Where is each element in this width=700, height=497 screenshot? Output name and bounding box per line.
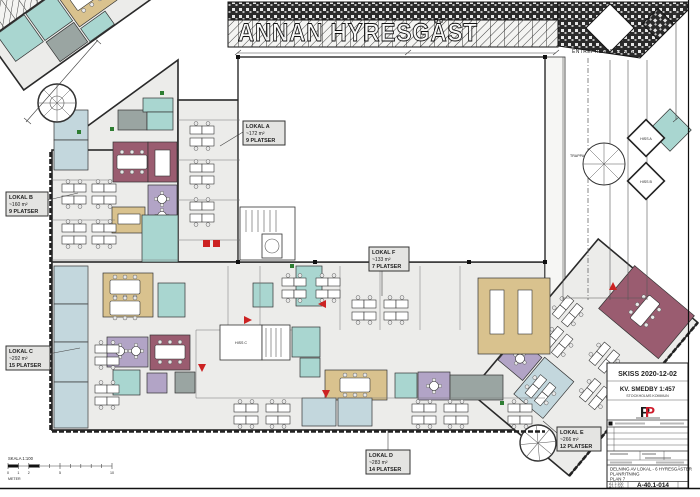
property-designation: KV. SMEDBY 1:457 xyxy=(620,386,676,393)
svg-text:15 PLATSER: 15 PLATSER xyxy=(9,363,41,369)
svg-text:HISS B: HISS B xyxy=(640,180,652,184)
sketch-date: SKISS 2020-12-02 xyxy=(618,371,677,378)
svg-text:LOKAL E: LOKAL E xyxy=(560,430,584,436)
svg-text:LOKAL D: LOKAL D xyxy=(369,453,393,459)
svg-text:HISS A: HISS A xyxy=(640,137,652,141)
hiss-b-icon: HISS B xyxy=(628,163,665,200)
svg-text:~292 m²: ~292 m² xyxy=(9,356,28,362)
svg-text:~266 m²: ~266 m² xyxy=(560,437,579,443)
courtyard-stair-core xyxy=(240,207,295,260)
svg-text:~133 m²: ~133 m² xyxy=(372,257,391,263)
svg-text:9 PLATSER: 9 PLATSER xyxy=(246,138,275,144)
svg-text:10: 10 xyxy=(110,471,114,475)
drawing-description-3: PLAN 7 xyxy=(610,477,626,482)
svg-text:9 PLATSER: 9 PLATSER xyxy=(9,209,38,215)
scale-bar-title: SKALA 1:100 xyxy=(8,456,34,461)
svg-text:12 PLATSER: 12 PLATSER xyxy=(560,444,592,450)
neighbor-tenant-label: ANNAN HYRESGÄST xyxy=(238,19,478,47)
spiral-stair-icon: TRAPPA xyxy=(570,143,625,185)
svg-text:~283 m²: ~283 m² xyxy=(369,460,388,466)
svg-text:7 PLATSER: 7 PLATSER xyxy=(372,264,401,270)
floor-plan-sheet: ANNAN HYRESGÄST xyxy=(0,0,700,497)
spiral-stair-turret-north xyxy=(38,84,76,122)
entreprenadgrans-label: ENTREPRENADGRÄNS xyxy=(572,48,634,55)
municipality: STOCKHOLMS KOMMUN xyxy=(626,394,669,398)
svg-text:2: 2 xyxy=(28,471,30,475)
svg-text:LOKAL C: LOKAL C xyxy=(9,349,33,355)
hiss-c-label: HISS C xyxy=(235,341,247,345)
svg-text:~172 m²: ~172 m² xyxy=(246,131,265,137)
svg-text:14 PLATSER: 14 PLATSER xyxy=(369,467,401,473)
floor-plan-canvas: ANNAN HYRESGÄST xyxy=(0,0,700,497)
trappa-label: TRAPPA xyxy=(570,154,585,158)
svg-text:1: 1 xyxy=(17,471,19,475)
svg-text:~160 m²: ~160 m² xyxy=(9,202,28,208)
svg-text:0: 0 xyxy=(7,471,9,475)
svg-text:LOKAL B: LOKAL B xyxy=(9,195,33,201)
svg-text:LOKAL F: LOKAL F xyxy=(372,250,396,256)
svg-text:LOKAL A: LOKAL A xyxy=(246,124,270,130)
hiss-c-core: HISS C xyxy=(220,325,290,360)
scale-bar-unit: METER xyxy=(8,477,21,481)
svg-text:5: 5 xyxy=(59,471,61,475)
title-block: SKISS 2020-12-02 KV. SMEDBY 1:457 STOCKH… xyxy=(607,363,692,489)
scale-bar: SKALA 1:100 0 1 2 5 10 METER xyxy=(7,456,114,481)
lokal-d-label: LOKAL D ~283 m² 14 PLATSER xyxy=(366,429,410,474)
